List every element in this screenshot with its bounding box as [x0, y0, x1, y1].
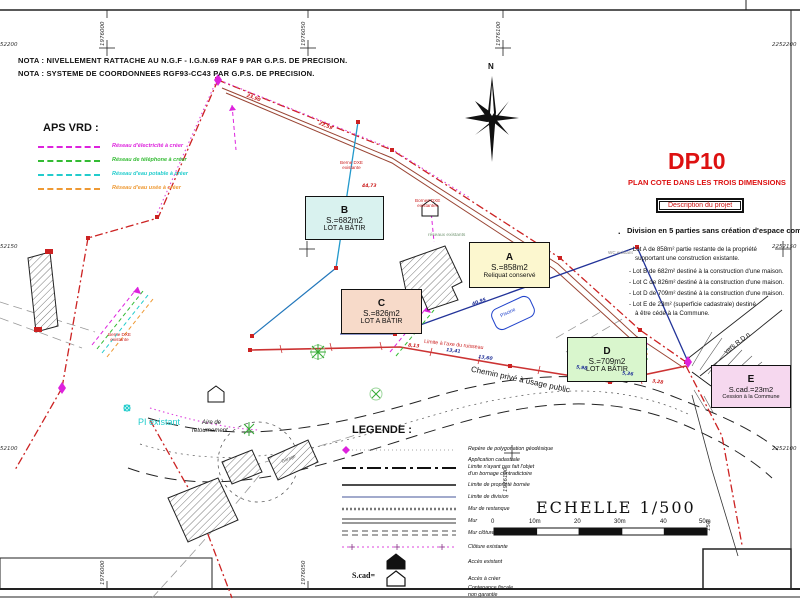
lot-D-area: S.=709m2: [568, 357, 646, 366]
northing-right-2: 2252150: [772, 244, 797, 250]
legend-label-mur: Mur: [468, 518, 477, 524]
hydrant-label: PI existant: [138, 417, 180, 427]
lot-A-area: S.=858m2: [470, 263, 549, 272]
easting-bottom-1: 1976000: [100, 561, 106, 586]
scale-tick-20: 20: [574, 519, 581, 525]
lot-B-id: B: [306, 205, 383, 216]
project-line-1: - Lot A de 858m² partie restante de la p…: [629, 246, 757, 253]
easting-top-3: 1976100: [496, 22, 502, 47]
northing-left-3: 52100: [0, 446, 18, 452]
project-line-5: - Lot D de 709m² destiné à la constructi…: [629, 290, 784, 297]
networks-label: réseaux existants: [428, 233, 465, 238]
aps-label-sewage: Réseau d'eau usée à créer: [112, 185, 181, 191]
legend-symbols: [342, 446, 456, 586]
north-label: N: [488, 62, 494, 71]
aps-line-telephone: [38, 160, 100, 162]
lot-box-D: D S.=709m2 LOT A BÂTIR: [567, 337, 647, 382]
legend-label-acces-existant: Accès existant: [468, 559, 502, 565]
lot-E-desc: Cession à la Commune: [712, 394, 790, 400]
aps-vrd-title: APS VRD :: [43, 122, 99, 134]
aps-label-water: Réseau d'eau potable à créer: [112, 171, 188, 177]
lot-C-id: C: [342, 298, 421, 309]
project-line-6: - Lot E de 23m² (superficie cadastrale) …: [629, 301, 756, 308]
berne-label-3b: existante: [110, 337, 128, 342]
legend-label-acces-a-creer: Accès à créer: [468, 576, 500, 582]
dim-8-13: 8,13: [408, 344, 420, 350]
legend-label-restanque: Mur de restanque: [468, 506, 510, 512]
trees: [244, 344, 382, 436]
hydrant-icon: [124, 405, 130, 411]
legend-label-application-2: Limite n'ayant pas fait l'objet: [468, 464, 534, 470]
berne-label-3: Berne DXE existante: [108, 332, 131, 342]
lot-C-desc: LOT A BÂTIR: [342, 318, 421, 325]
berne-line: [222, 88, 684, 368]
northing-right-1: 2252200: [772, 42, 797, 48]
northing-right-3: 2252100: [772, 446, 797, 452]
legend-label-contenance-2: non garantie: [468, 592, 497, 598]
north-star: [465, 76, 519, 162]
legend-label-propriete: Limite de propriété bornée: [468, 482, 530, 488]
turnaround-label-2: retournement: [192, 428, 228, 434]
berne-label-2b: existantes: [417, 203, 438, 208]
lot-B-desc: LOT A BÂTIR: [306, 225, 383, 232]
lot-E-area: S.cad.=23m2: [712, 385, 790, 394]
lot-C-area: S.=826m2: [342, 309, 421, 318]
scale-tick-0: 0: [491, 519, 494, 525]
scale-tick-50: 50m: [699, 519, 711, 525]
scale-tick-30: 30m: [614, 519, 626, 525]
page-title: DP10: [668, 148, 726, 175]
aps-line-water: [38, 174, 100, 176]
aps-label-telephone: Réseau de téléphone à créer: [112, 157, 187, 163]
legend-label-contenance-1: Contenance fiscale: [468, 585, 513, 591]
berne-label-1b: existante: [342, 165, 360, 170]
project-line-3: - Lot B de 682m² destiné à la constructi…: [629, 268, 784, 275]
page-subtitle: PLAN COTE DANS LES TROIS DIMENSIONS: [628, 178, 786, 187]
road: [128, 377, 778, 502]
easting-top-1: 1976000: [100, 22, 106, 47]
scale-label: ECHELLE 1/500: [536, 498, 696, 517]
northing-left-1: 52200: [0, 42, 18, 48]
nota-line-2: NOTA : SYSTEME DE COORDONNEES RGF93-CC43…: [18, 69, 315, 78]
lot-A-id: A: [470, 252, 549, 263]
project-line-2: supportant une construction existante.: [635, 255, 740, 262]
aps-line-electricity: [38, 146, 100, 148]
lot-D-id: D: [568, 346, 646, 357]
wc-label: WC existant: [608, 250, 633, 255]
lot-box-A: A S.=858m2 Reliquat conservé: [469, 242, 550, 288]
dim-5-36: 5,36: [622, 371, 634, 377]
berne-label-2: Bornes DXE existantes: [415, 198, 440, 208]
northing-left-2: 52150: [0, 244, 18, 250]
lot-A-desc: Reliquat conservé: [470, 272, 549, 279]
legend-scad-symbol: S.cad=: [352, 571, 375, 580]
aps-line-sewage: [38, 188, 100, 190]
lot-E-id: E: [712, 374, 790, 385]
scale-tick-40: 40: [660, 519, 667, 525]
legend-label-repere: Repère de polygonation géodésique: [468, 446, 553, 452]
easting-bottom-2: 1976050: [301, 561, 307, 586]
project-line-7: à être cédé à la Commune.: [635, 310, 710, 317]
legend-title: LEGENDE :: [352, 424, 412, 436]
lot-B-area: S.=682m2: [306, 216, 383, 225]
project-description-box: Description du projet: [656, 198, 744, 213]
aps-label-electricity: Réseau d'électricité à créer: [112, 143, 183, 149]
project-line-4: - Lot C de 826m² destiné à la constructi…: [629, 279, 784, 286]
legend-label-application-1: Application cadastrale: [468, 457, 520, 463]
lot-box-B: B S.=682m2 LOT A BÂTIR: [305, 196, 384, 240]
dim-44-73: 44,73: [362, 184, 377, 189]
easting-top-2: 1976050: [301, 22, 307, 47]
legend-label-cloture-existante: Clôture existante: [468, 544, 508, 550]
rd-access: [686, 296, 782, 556]
lot-box-E: E S.cad.=23m2 Cession à la Commune: [711, 365, 791, 408]
lot-box-C: C S.=826m2 LOT A BÂTIR: [341, 289, 422, 334]
legend-label-division: Limite de division: [468, 494, 509, 500]
scale-bar: [494, 528, 707, 535]
berne-label-1: Berne DXE existante: [340, 160, 363, 170]
utility-arrowheads: [133, 105, 434, 313]
project-heading: Division en 5 parties sans création d'es…: [627, 226, 800, 235]
legend-label-mur-cloture: Mur clôture: [468, 530, 495, 536]
scale-tick-10: 10m: [529, 519, 541, 525]
turnaround-label-1: Aire de: [202, 420, 221, 426]
cadastral-plan-sheet: NOTA : NIVELLEMENT RATTACHE AU N.G.F - I…: [0, 0, 800, 600]
legend-label-application-3: d'un bornage contradictoire: [468, 471, 532, 477]
bullet-dot: .: [618, 226, 621, 236]
nota-line-1: NOTA : NIVELLEMENT RATTACHE AU N.G.F - I…: [18, 56, 347, 65]
